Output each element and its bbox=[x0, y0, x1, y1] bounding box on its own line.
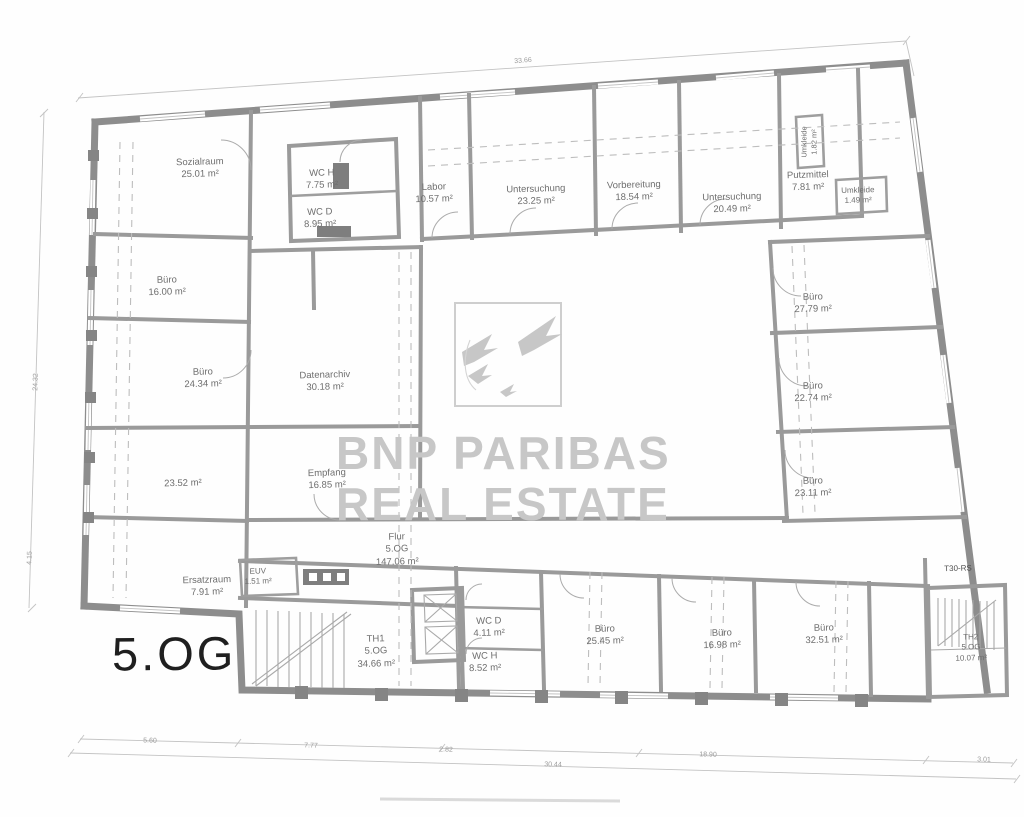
room-label-buero-22-74: Büro22.74 m² bbox=[794, 380, 832, 406]
dim-bottom-5: 3.01 bbox=[977, 756, 991, 763]
floorplan-page: Sozialraum25.01 m² WC H7.75 m² WC D8.95 … bbox=[0, 0, 1024, 817]
label-t30-rs: T30-RS bbox=[944, 563, 972, 574]
dim-top-width: 33.66 bbox=[514, 57, 532, 65]
room-label-buero-24-34: Büro24.34 m² bbox=[184, 366, 222, 392]
watermark-line1: BNP PARIBAS bbox=[336, 428, 671, 479]
dim-bottom-1: 5.60 bbox=[143, 737, 157, 744]
bnp-paribas-logo bbox=[455, 303, 562, 406]
room-label-ersatzraum: Ersatzraum7.91 m² bbox=[182, 574, 231, 600]
room-label-vorbereitung: Vorbereitung18.54 m² bbox=[607, 179, 662, 205]
room-label-datenarchiv: Datenarchiv30.18 m² bbox=[299, 369, 350, 395]
room-label-sozialraum: Sozialraum25.01 m² bbox=[176, 156, 224, 182]
room-label-buero-27-79: Büro27.79 m² bbox=[794, 291, 832, 317]
dim-bottom-2: 7.77 bbox=[304, 742, 318, 749]
stairs-th1 bbox=[240, 590, 463, 688]
room-label-untersuchung-1: Untersuchung23.25 m² bbox=[506, 183, 566, 209]
room-label-flur: Flur5.OG147.06 m² bbox=[375, 531, 419, 569]
room-label-th2: TH25.OG10.07 m² bbox=[955, 632, 987, 664]
room-label-buero-32-51: Büro32.51 m² bbox=[805, 622, 843, 648]
room-label-umkleide-klein: Umkleide1.49 m² bbox=[841, 185, 875, 207]
room-label-putzmittel: Putzmittel7.81 m² bbox=[787, 169, 829, 195]
room-label-euv: EUV1.51 m² bbox=[244, 566, 272, 587]
room-label-wc-h-top: WC H7.75 m² bbox=[306, 167, 339, 193]
floor-label: 5.OG bbox=[112, 625, 237, 681]
floorplan-drawing bbox=[0, 0, 1024, 817]
room-label-buero-16-98: Büro16.98 m² bbox=[703, 627, 741, 653]
room-label-buero-16-00: Büro16.00 m² bbox=[148, 274, 186, 300]
room-label-wc-d-unten: WC D4.11 m² bbox=[473, 615, 505, 641]
room-label-wc-h-unten: WC H8.52 m² bbox=[469, 650, 502, 676]
room-label-buero-23-11: Büro23.11 m² bbox=[794, 475, 831, 501]
watermark-line2: REAL ESTATE bbox=[336, 479, 671, 530]
room-label-raum-23-52: 23.52 m² bbox=[164, 477, 202, 490]
watermark-text: BNP PARIBAS REAL ESTATE bbox=[336, 428, 671, 529]
dim-bottom-total: 30.44 bbox=[544, 761, 562, 768]
scan-smudge bbox=[380, 799, 620, 801]
room-label-untersuchung-2: Untersuchung20.49 m² bbox=[702, 191, 762, 217]
dim-left-height: 24.32 bbox=[32, 373, 40, 391]
dim-left-lower: 4.15 bbox=[26, 551, 33, 565]
room-label-labor: Labor10.57 m² bbox=[415, 181, 453, 207]
dim-bottom-3: 2.82 bbox=[439, 746, 453, 753]
dim-bottom-4: 18.90 bbox=[699, 751, 717, 758]
room-label-buero-25-45: Büro25.45 m² bbox=[586, 623, 624, 649]
room-label-wc-d-top: WC D8.95 m² bbox=[304, 206, 337, 232]
room-label-umkleide-vertikal: Umkleide1.82 m² bbox=[799, 126, 819, 157]
room-label-th1: TH15.OG34.66 m² bbox=[357, 633, 395, 671]
